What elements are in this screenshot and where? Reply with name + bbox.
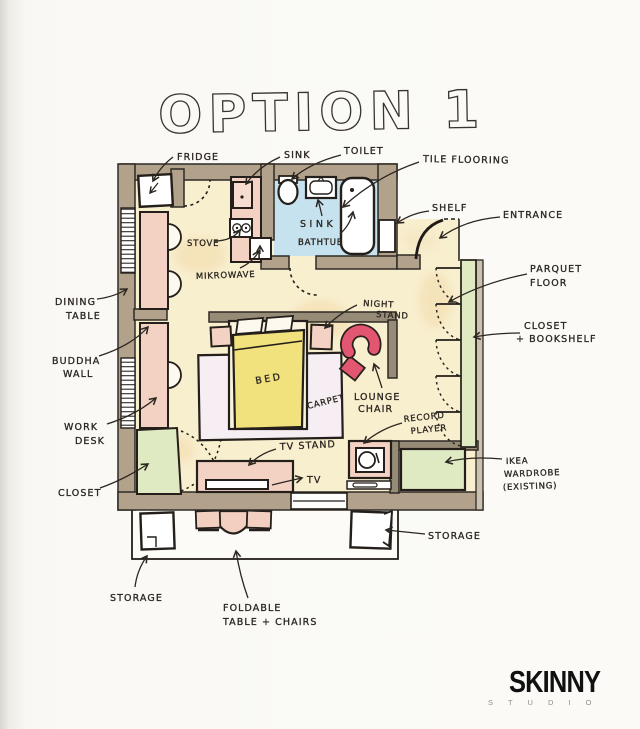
label-storage-right: STORAGE — [428, 531, 481, 542]
storage-box-left — [140, 512, 174, 549]
label-sink-bath: SINK — [300, 219, 336, 230]
record-platter — [359, 452, 375, 468]
bathtub — [341, 178, 374, 254]
wall-right — [476, 260, 483, 510]
label-sink-kitchen: SINK — [284, 150, 311, 161]
label-shelf: SHELF — [432, 203, 467, 214]
studio-logo: SKINNY S T U D I O — [455, 666, 600, 707]
work-desk — [140, 323, 168, 428]
label-lounge-1: LOUNGE — [354, 392, 400, 403]
label-closet: CLOSET — [58, 488, 102, 499]
foldable-chair-left — [196, 511, 221, 529]
wall-bath-bottom-b — [316, 256, 397, 269]
fridge — [138, 174, 173, 207]
wall-left-pier — [134, 309, 167, 320]
label-lounge-2: CHAIR — [358, 404, 393, 415]
night-stand-left — [211, 326, 232, 346]
bottom-window — [291, 493, 347, 509]
label-storage-left: STORAGE — [110, 593, 163, 604]
toilet — [279, 180, 298, 204]
scanned-floorplan-page: OPTION 1 — [0, 0, 640, 729]
label-night-stand-1: NIGHT — [363, 299, 395, 311]
label-dining-2: TABLE — [65, 311, 101, 322]
label-mikrowave: MIKROWAVE — [196, 270, 256, 282]
label-foldable-1: FOLDABLE — [223, 603, 282, 614]
kitchen-sink-drain — [240, 195, 243, 198]
balcony — [132, 509, 398, 559]
arrow-storage-left — [135, 556, 147, 587]
label-night-stand-2: STAND — [376, 310, 409, 322]
label-ikea-2: WARDROBE — [504, 468, 561, 480]
label-stove: STOVE — [187, 239, 219, 249]
tv — [206, 480, 268, 489]
kitchen-sink — [233, 182, 252, 208]
label-ikea-3: (EXISTING) — [503, 481, 558, 493]
pillow-right — [265, 316, 293, 332]
label-buddha-1: BUDDHA — [52, 356, 100, 367]
dining-table — [140, 212, 168, 309]
night-stand-right — [311, 325, 333, 350]
pillow-left — [236, 318, 263, 334]
label-buddha-2: WALL — [63, 369, 93, 380]
label-parquet-2: FLOOR — [530, 278, 567, 289]
bath-sink-basin — [310, 181, 332, 194]
label-bathtub: BATHTUB — [298, 238, 343, 248]
window-hatch-1-lines — [121, 208, 135, 273]
label-work-desk-2: DESK — [75, 436, 105, 447]
label-closet-bookshelf-1: CLOSET — [524, 321, 568, 332]
label-toilet: TOILET — [343, 146, 384, 157]
closet-bottom-left — [137, 428, 181, 494]
logo-sub-text: S T U D I O — [455, 698, 600, 707]
foldable-chair-right — [247, 511, 272, 529]
shelf-niche — [379, 220, 395, 252]
logo-brand-text: SKINNY — [509, 666, 600, 697]
label-tile-flooring: TILE FLOORING — [422, 154, 510, 167]
label-work-desk-1: WORK — [64, 422, 98, 433]
ikea-wardrobe — [401, 449, 465, 490]
bathtub-drain — [350, 188, 354, 192]
plan-title: OPTION 1 — [158, 80, 486, 146]
label-tv: TV — [306, 475, 322, 486]
vinyl-record — [353, 483, 377, 487]
label-foldable-2: TABLE + CHAIRS — [222, 617, 318, 628]
label-entrance: ENTRANCE — [503, 210, 563, 221]
label-fridge: FRIDGE — [177, 152, 219, 163]
label-closet-bookshelf-2: + BOOKSHELF — [516, 334, 597, 345]
label-dining-1: DINING — [55, 297, 96, 308]
label-ikea-1: IKEA — [506, 456, 529, 467]
wall-bed-right-stub — [388, 320, 397, 378]
floorplan-drawing: OPTION 1 — [0, 0, 640, 729]
label-parquet-1: PARQUET — [530, 264, 582, 275]
wall-kitchen-bath-divider — [261, 164, 274, 240]
